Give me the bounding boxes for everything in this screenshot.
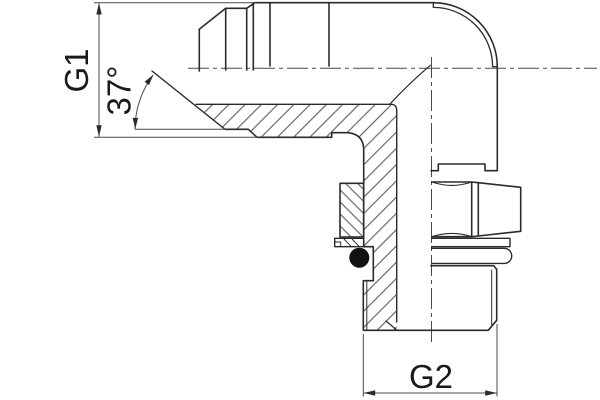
angle-arrow-bottom [133,118,139,129]
o-ring-section-dot [349,248,369,268]
stud-step-profile [431,164,497,171]
g1-arrow-top [96,3,101,15]
dimension-angle [133,75,226,130]
g2-label: G2 [409,358,453,395]
nut-chamfer-arc-bottom [433,233,471,236]
g1-label: G1 [58,48,95,92]
nut-outline-right [431,182,521,237]
drawing-canvas: G1 37° G2 [0,0,600,400]
bend-bore-silhouette [390,65,430,103]
elbow-fitting-drawing: G1 37° G2 [0,0,600,400]
nut-chamfer-arc-top [433,182,471,185]
elbow-outer-arc [433,3,497,171]
nut-section-block [340,183,364,237]
angle-arc [135,75,153,129]
washer-right [431,238,510,246]
seal-washer [335,238,510,246]
flare-nose-chamfer [199,3,433,30]
g2-arrow-right [485,390,497,395]
g1-arrow-bottom [96,125,101,137]
g2-arrow-left [364,390,376,395]
elbow-inner-arc [433,3,497,67]
o-ring-side-view [431,248,512,263]
fitting-outline [152,3,497,331]
angle-label: 37° [101,66,138,116]
washer-left-step [335,242,341,247]
flare-cone-line [152,71,225,129]
angle-arrow-top [145,75,154,86]
